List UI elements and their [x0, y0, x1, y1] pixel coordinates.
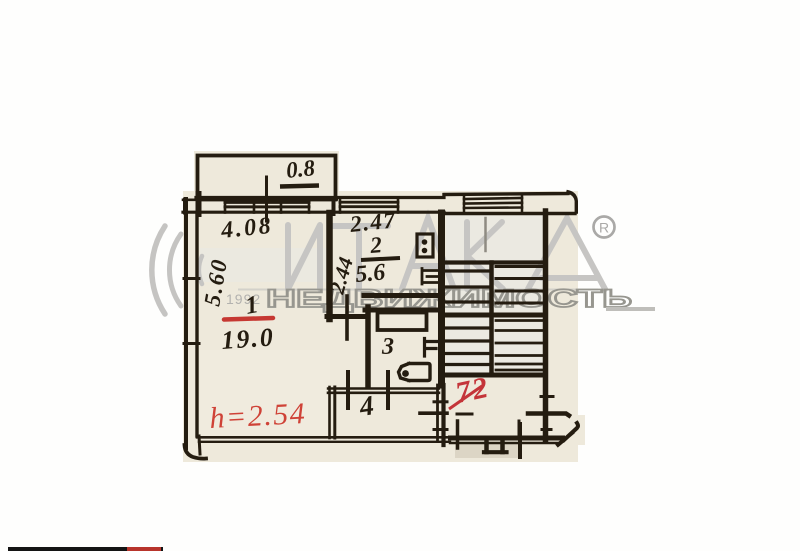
svg-text:3: 3: [381, 334, 394, 360]
svg-text:НЕДВИЖИМОСТЬ: НЕДВИЖИМОСТЬ: [266, 285, 632, 313]
svg-text:4.08: 4.08: [219, 213, 274, 244]
svg-text:0.8: 0.8: [285, 155, 317, 183]
svg-text:h=2.54: h=2.54: [209, 397, 307, 435]
svg-text:5.6: 5.6: [354, 259, 386, 288]
svg-text:19.0: 19.0: [220, 322, 275, 355]
svg-text:2: 2: [368, 232, 383, 258]
svg-text:R: R: [599, 220, 609, 236]
